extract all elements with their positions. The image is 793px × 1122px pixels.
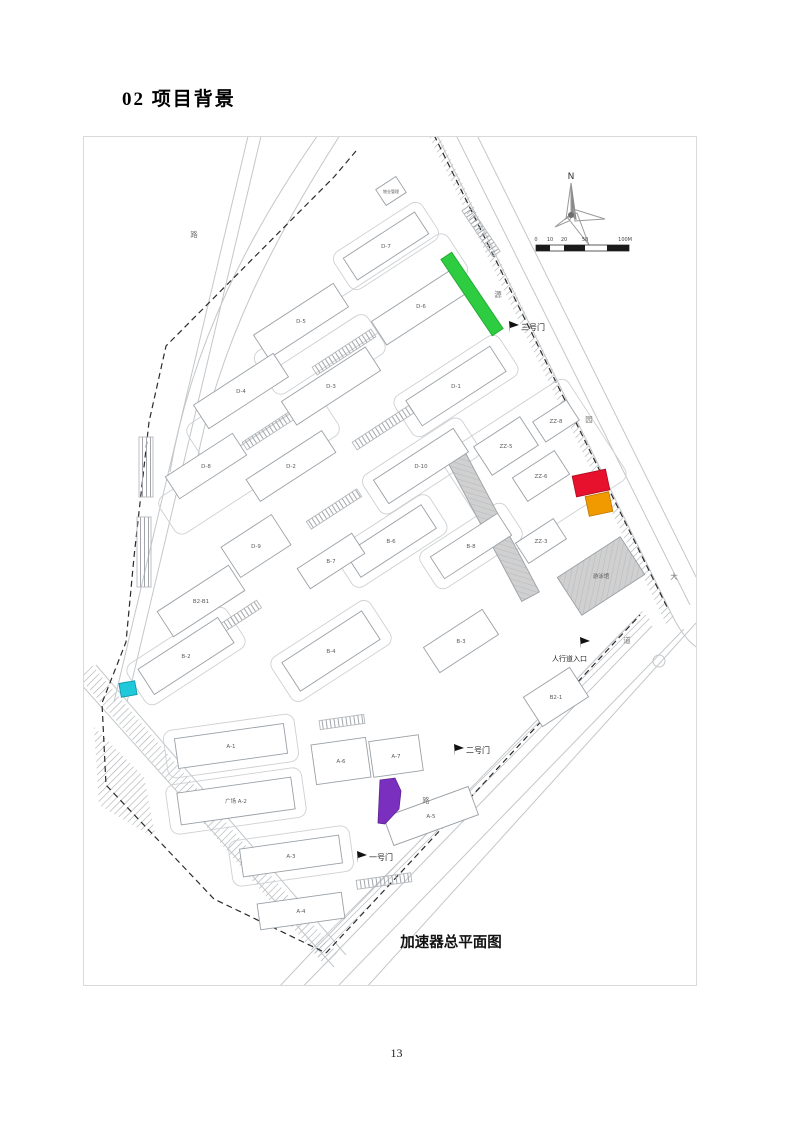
gate-label: 人行道入口: [552, 654, 587, 663]
building-label: B-7: [326, 559, 336, 565]
parking-row: [137, 517, 151, 587]
building-label: ZZ-5: [500, 444, 513, 450]
building-label: A-1: [226, 744, 235, 750]
gate-flag-icon: [509, 321, 519, 333]
gate-flag-icon: [454, 744, 464, 756]
building-label: B-6: [386, 539, 396, 545]
road-name-char: 路: [422, 795, 430, 805]
gate-flag-icon: [357, 851, 367, 863]
building-label: D-8: [201, 464, 211, 470]
parking-row: [306, 489, 361, 529]
scale-bar: 0 10 20 50 100M: [534, 237, 632, 251]
building-label: A-5: [426, 814, 436, 820]
north-arrow-icon: [555, 183, 605, 245]
building-label: ZZ-8: [550, 419, 563, 425]
road-name-char: 园: [585, 415, 593, 424]
road-name-char: 道: [623, 635, 631, 645]
building-label: D-3: [326, 384, 336, 390]
building-label: A-4: [296, 909, 306, 915]
building-label: B-2: [181, 654, 190, 660]
north-label: N: [568, 172, 575, 182]
page-title: 02 项目背景: [122, 84, 236, 111]
scale-tick: 50: [582, 237, 588, 243]
building-label: B2-1: [550, 695, 563, 701]
road-name-char: 路: [190, 229, 198, 239]
scale-tick: 100M: [618, 237, 632, 243]
map-caption: 加速器总平面图: [399, 933, 502, 951]
building-label: D-9: [251, 544, 261, 550]
gate-marker: 一号门: [357, 851, 393, 863]
gate-marker: 二号门: [454, 744, 490, 756]
road-name-labels: 路源园大道路: [190, 229, 678, 805]
road-name-char: 源: [494, 290, 502, 299]
building-label: D-7: [381, 244, 391, 250]
gate-label: 二号门: [466, 745, 490, 755]
gate-flag-icon: [580, 637, 590, 649]
building-label: D-6: [416, 304, 426, 310]
parking-row: [319, 714, 365, 729]
building-label: D-10: [414, 464, 428, 470]
building-label: 游泳馆: [593, 572, 610, 580]
building-label: 广场 A-2: [225, 797, 247, 805]
building-label: B-8: [466, 544, 476, 550]
gate-label: 一号门: [369, 852, 393, 862]
building-label: D-4: [236, 389, 246, 395]
highlight-orange-building: [585, 492, 613, 517]
building-label: A-3: [286, 854, 296, 860]
building-label: D-1: [451, 384, 461, 390]
parking-row: [139, 437, 153, 497]
gate-label: 三号门: [521, 322, 545, 332]
building-label: D-2: [286, 464, 296, 470]
gate-marker: 三号门: [509, 321, 545, 333]
building-label: 物业管理: [383, 188, 399, 194]
parking-row: [352, 404, 416, 450]
parking-row: [462, 206, 500, 257]
building-label: ZZ-6: [535, 474, 548, 480]
building-label: D-5: [296, 319, 306, 325]
page-number: 13: [0, 1046, 793, 1061]
building-label: B-4: [326, 649, 336, 655]
building-label: B2-B1: [193, 599, 209, 605]
scale-tick: 20: [561, 237, 567, 243]
road-name-char: 大: [670, 571, 678, 581]
scale-tick: 10: [547, 237, 553, 243]
site-plan-svg: D-7物业管理D-5D-6D-4D-3D-1D-8D-2D-10ZZ-5ZZ-6…: [84, 137, 696, 985]
building-label: B-3: [456, 639, 466, 645]
building-label: ZZ-3: [535, 539, 548, 545]
site-plan-figure: D-7物业管理D-5D-6D-4D-3D-1D-8D-2D-10ZZ-5ZZ-6…: [83, 136, 697, 986]
building-label: A-7: [391, 754, 401, 760]
building-label: A-6: [336, 759, 346, 765]
scale-tick: 0: [534, 237, 537, 243]
highlight-cyan-building: [119, 681, 137, 698]
gate-marker: 人行道入口: [552, 637, 590, 663]
